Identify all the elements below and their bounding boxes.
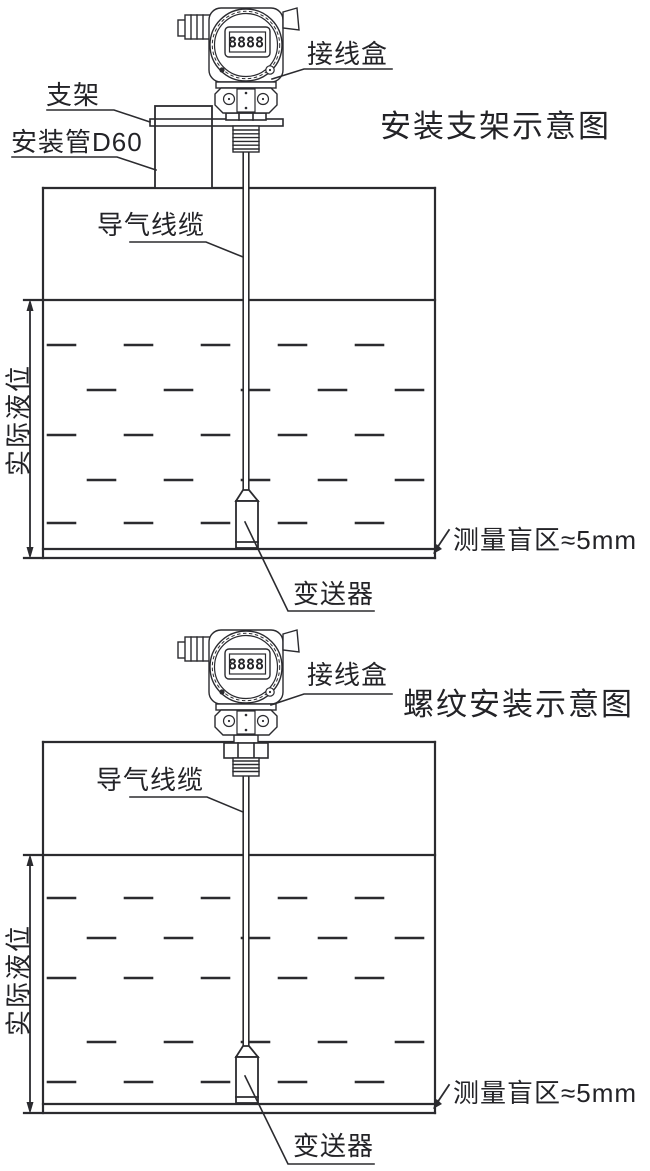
- threaded-stub: [233, 126, 259, 152]
- air-cable: [243, 776, 249, 1046]
- hex-nut: [226, 113, 266, 120]
- actual-level-label: 实际液位: [0, 364, 36, 476]
- junction-box-label: 接线盒: [307, 662, 388, 689]
- diagram-title: 安装支架示意图: [380, 111, 611, 144]
- transmitter-label: 变送器: [293, 581, 374, 608]
- junction-box-label: 接线盒: [307, 41, 388, 68]
- diagram-page: 8888: [0, 0, 650, 1171]
- transmitter-head-icon: [178, 630, 299, 735]
- threaded-mount-diagram: 8888: [24, 630, 449, 1164]
- mounting-pipe-label: 安装管D60: [11, 129, 143, 156]
- probe-transmitter: [236, 490, 258, 548]
- air-cable-label: 导气线缆: [97, 212, 205, 239]
- blind-zone-label: 测量盲区≈5mm: [453, 1080, 637, 1107]
- threaded-stub: [233, 758, 259, 776]
- tank-outline: [24, 188, 435, 558]
- bracket-label: 支架: [46, 82, 100, 109]
- blind-zone-label: 测量盲区≈5mm: [453, 527, 637, 554]
- air-cable-label: 导气线缆: [96, 767, 204, 794]
- actual-level-label: 实际液位: [0, 924, 36, 1036]
- diagram-title: 螺纹安装示意图: [403, 689, 634, 722]
- air-cable: [243, 152, 249, 492]
- lcd-display: 8888: [228, 34, 264, 52]
- lcd-display: 8888: [228, 656, 264, 674]
- transmitter-head-icon: [178, 8, 299, 113]
- transmitter-label: 变送器: [293, 1133, 374, 1160]
- collar: [234, 735, 258, 743]
- tank-outline: [24, 742, 435, 1113]
- hex-nut: [224, 743, 268, 758]
